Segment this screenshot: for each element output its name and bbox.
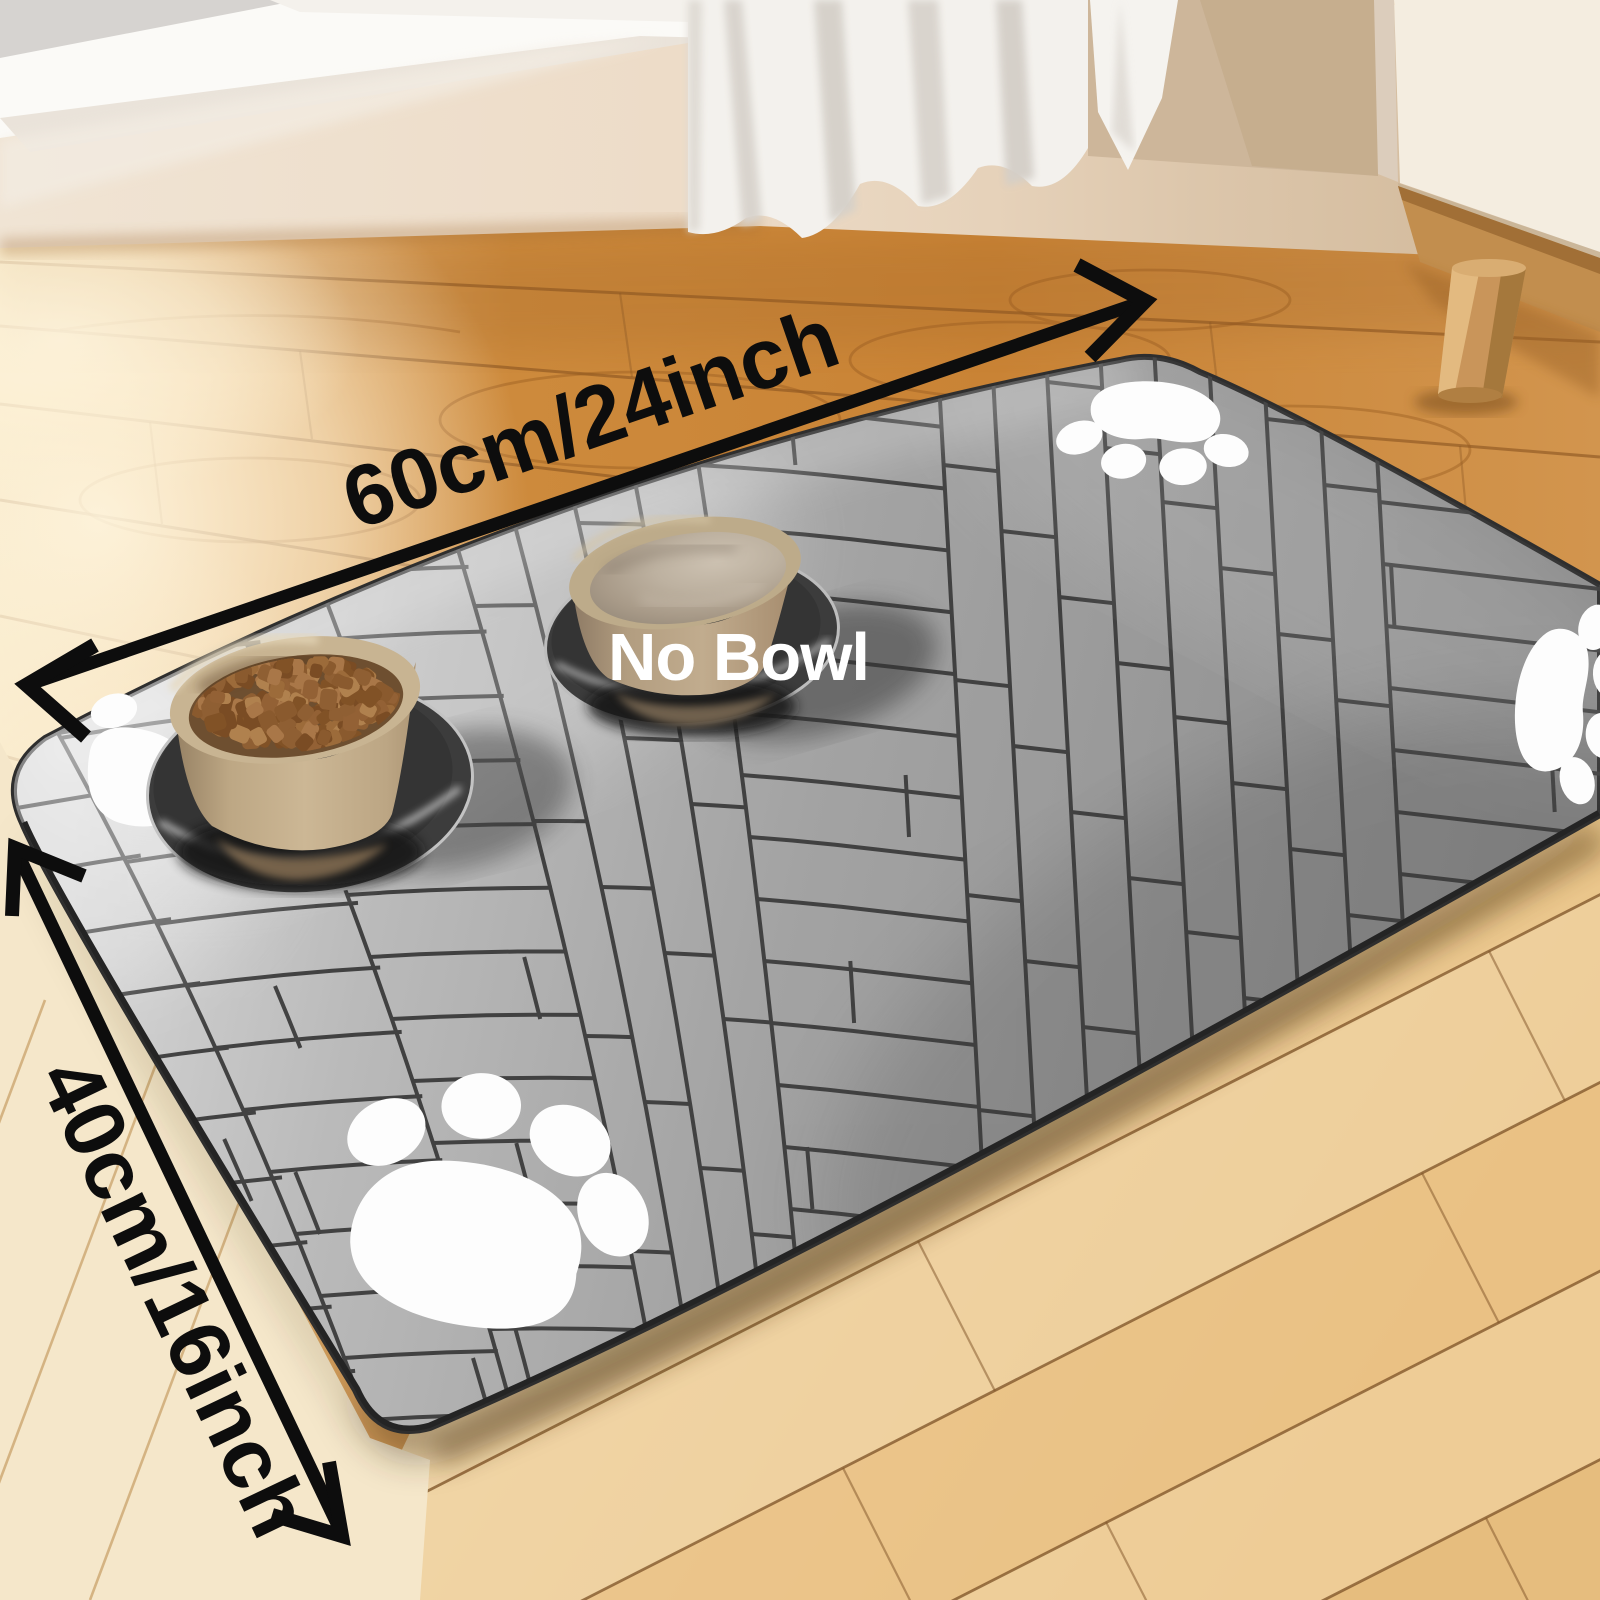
svg-text:No Bowl: No Bowl <box>608 620 869 695</box>
